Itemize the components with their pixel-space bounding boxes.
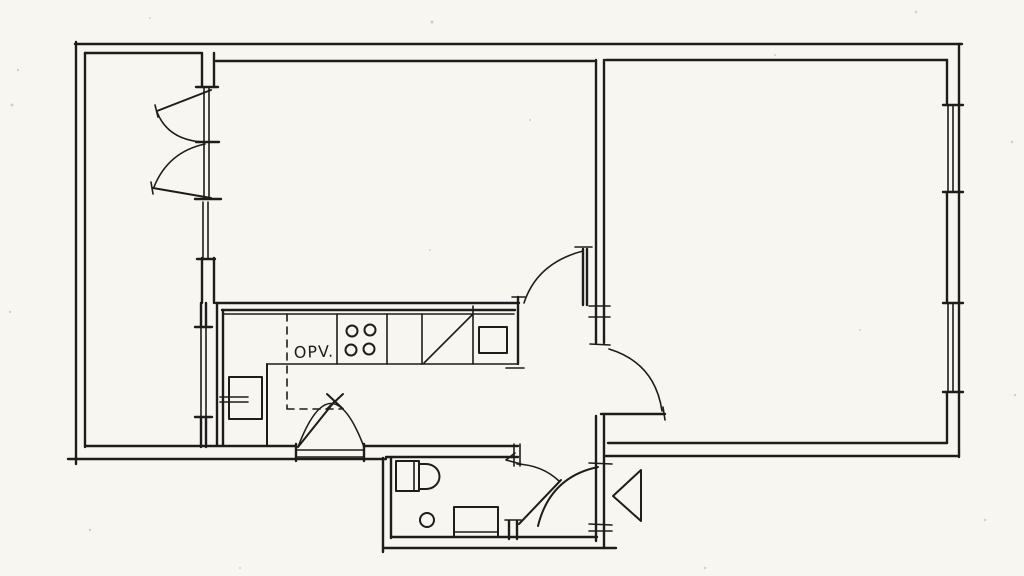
sink-drainer-diagonal xyxy=(424,315,472,363)
paper-specks xyxy=(9,11,1016,569)
hall-to-room-door xyxy=(601,349,665,420)
hall-partition xyxy=(589,60,610,548)
entrance-arrow-icon xyxy=(613,470,641,521)
exterior-walls xyxy=(68,42,962,464)
kitchen-service-door xyxy=(296,394,364,461)
vent-shaft-square xyxy=(479,327,507,353)
toilet-icon xyxy=(396,461,440,491)
entrance xyxy=(538,463,641,531)
washing-machine-icon xyxy=(454,507,498,537)
kitchen-base-cabinet xyxy=(220,377,262,419)
balcony-french-doors xyxy=(151,90,211,198)
front-door-swing xyxy=(538,467,598,526)
living-room-to-hall-door xyxy=(524,247,592,305)
opv-label: OPV. xyxy=(293,342,334,362)
stove-four-burners-icon xyxy=(346,325,376,356)
floor-drain-icon xyxy=(420,513,434,527)
kitchen: OPV. xyxy=(216,297,525,461)
floor-plan-page: OPV. xyxy=(0,0,1024,576)
bathroom xyxy=(383,444,616,552)
floor-plan-drawing: OPV. xyxy=(0,0,1024,576)
